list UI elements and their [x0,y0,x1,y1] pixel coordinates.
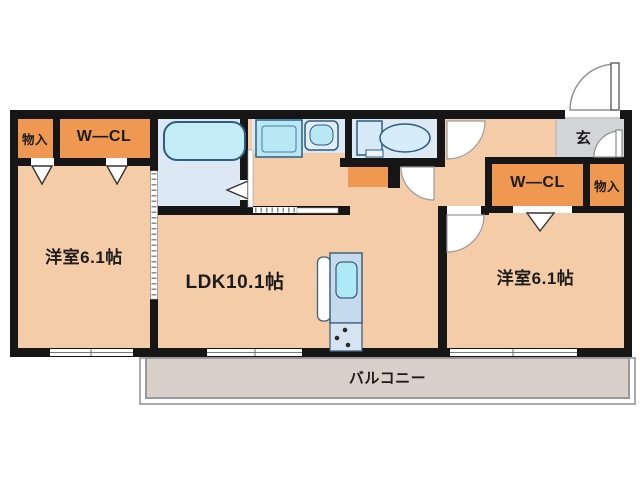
closet-top-left-small-label: 物入 [16,129,54,148]
bathroom-floor [158,119,240,206]
closet-right-opening [513,206,572,213]
ldk-label: LDK10.1帖 [160,267,310,294]
wall-stub-hall [388,158,400,188]
closet-top-left-wcl-label: W—CL [58,128,150,146]
balcony-label: バルコニー [145,367,630,388]
wall-bath-right [240,119,248,215]
wall-wet-bottom [152,206,350,215]
left-bedroom-label: 洋室6.1帖 [18,243,150,268]
wall-closet-bottom-a [18,158,31,166]
entrance-label: 玄 [556,127,611,148]
window-right-bedroom [450,349,577,356]
wall-right [624,110,632,357]
hall-counter [348,167,388,187]
wall-closet-bottom-b [54,158,106,166]
entrance-opening [565,110,620,119]
entrance-door-leaf-icon [611,63,619,110]
wall-ldk-right [438,206,447,357]
window-ldk [207,349,302,356]
floor-plan: 物入 W—CL 洋室6.1帖 LDK10.1帖 洋室6.1帖 玄 W—CL 物入… [0,0,640,480]
wall-bedroom-left [150,119,158,348]
wall-wash-toilet [345,119,352,162]
closet-right-wcl-label: W—CL [492,174,583,192]
window-left-bedroom [50,349,133,356]
bedroom-right-door-opening [447,206,481,215]
bath-door-opening [240,180,248,200]
wall-closet-bottom-c [127,158,152,166]
wall-toilet-right [437,119,445,167]
closet-opening-2 [106,158,127,166]
toilet-floor [352,119,437,158]
closet-right-small-label: 物入 [590,176,624,195]
entrance-door-arc-icon [570,64,616,110]
washroom-floor [252,119,345,153]
closet-opening-1 [31,158,54,166]
wall-top [10,110,632,119]
wall-bedroom-right-top [481,206,489,215]
right-bedroom-label: 洋室6.1帖 [447,264,624,289]
